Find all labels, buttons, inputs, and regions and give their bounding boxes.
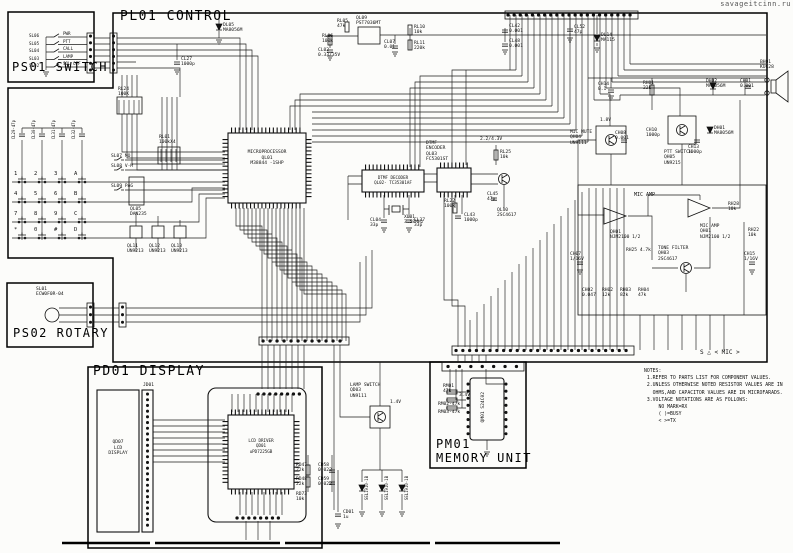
label-rm01: RM01 47k: [443, 384, 454, 395]
label-kc1: CL29-47p: [12, 120, 17, 139]
keypad-key: 9: [54, 211, 57, 217]
label-cl43: CL43 1000p: [464, 213, 478, 224]
label-qh01b: MIC AMP QH01 NJM2100 1/2: [700, 224, 730, 240]
keypad-key: 3: [54, 171, 57, 177]
block-title-pm01: PM01 MEMORY UNIT: [436, 438, 532, 466]
ic-lcd: QD07 LCD DISPLAY: [99, 440, 137, 457]
label-ch14: CH14 0.1: [598, 82, 609, 93]
label-cd58: CD58 0.022: [318, 463, 332, 474]
voltage-v14: 1.4V: [390, 400, 401, 405]
switch-name: SQL OFF: [63, 61, 81, 66]
label-rd48: RD48 22k: [296, 477, 307, 488]
keypad-key: 7: [14, 211, 17, 217]
label-ch10: CH10 1000p: [646, 128, 660, 139]
label-ch08: CH08 0.001: [615, 131, 629, 142]
label-rh02: RH02 12k: [602, 288, 613, 299]
label-bh01: BH01 KUC28: [760, 60, 774, 71]
keypad-key: C: [74, 211, 77, 217]
label-kc4: CL32-47p: [72, 120, 77, 139]
label-cl04: CL04 33p: [370, 218, 381, 229]
ic-dtmf-decoder: DTMF DECODER QL02- TC35301AF: [363, 175, 423, 186]
keypad-key: D: [74, 227, 77, 233]
label-ql12: QL12 UN9213: [149, 244, 166, 255]
label-kc3: CL31-47p: [52, 120, 57, 139]
switch-name: PTT: [63, 39, 71, 44]
label-mic-mute: MIC MUTE QH04 UN9111: [570, 130, 592, 146]
label-mic-amp: MIC AMP: [634, 193, 655, 199]
switch-name: LAMP: [63, 54, 73, 59]
label-led2: SEL1910-1B: [385, 476, 390, 500]
label-dh01: DH01 MA8056M: [714, 126, 733, 137]
label-rl06: RL06 100k: [322, 34, 333, 45]
label-ql11: QL11 UN9213: [127, 244, 144, 255]
label-rm03: RM03-47k: [438, 410, 460, 415]
sheet-mark: S △ < MIC >: [700, 349, 740, 356]
label-cl37: CL37 33p: [414, 218, 425, 229]
label-cl48: CL48 0.001: [509, 39, 523, 50]
keypad-key: 2: [34, 171, 37, 177]
keypad-key: 6: [54, 191, 57, 197]
label-ch15: CH15 1/16V: [744, 252, 758, 263]
label-cl42: CL42 0.001: [509, 24, 523, 35]
block-title-ps01: PS01 SWITCH: [12, 60, 108, 74]
label-rd47: RD47 22k: [296, 463, 307, 474]
switch-ref: SL06: [29, 33, 39, 38]
label-sl08: SL08 V-M: [111, 164, 133, 169]
label-rl11: RL11 220k: [414, 41, 425, 52]
keypad-key: 0: [34, 227, 37, 233]
keypad-key: 4: [14, 191, 17, 197]
label-rh28: RH28 10k: [728, 202, 739, 213]
label-ql10: QL10 2SC4617: [497, 208, 516, 219]
label-ql09: QL09 PST7036MT: [356, 16, 381, 27]
keypad-key: 1: [14, 171, 17, 177]
label-cl52: CL52 47p: [574, 25, 585, 36]
label-dl05: DL05 MA8056M: [223, 23, 242, 34]
block-title-pl01: PL01 CONTROL: [120, 9, 232, 24]
switch-ref: SL02: [29, 63, 39, 68]
ic-dtmf-encoder: DTMF ENCODER QL03 FC5301ST: [426, 141, 448, 162]
label-led3: SEL1910-1B: [405, 476, 410, 500]
label-rm02: RM02-47k: [438, 402, 460, 407]
ic-eeprom: QM01 S24C02: [481, 392, 486, 422]
label-tone-filter: TONE FILTER QH03 2SC4617: [658, 246, 688, 262]
label-rl22: RL22 100k: [444, 199, 455, 210]
label-ch02: CH02 0.047: [582, 288, 596, 299]
label-qh01a: QH01 NJM2100 1/2: [610, 230, 640, 241]
ic-cpu: MICROPROCESSOR QL01 M38844 -1SHP: [230, 150, 304, 167]
label-ch07: CH07 1/16V: [570, 252, 584, 263]
keypad-key: #: [54, 227, 57, 233]
keypad-key: A: [74, 171, 77, 177]
block-title-ps02: PS02 ROTARY: [13, 326, 109, 340]
label-ql13: QL13 UN9213: [171, 244, 188, 255]
ic-lcd-driver: LCD DRIVER QD01 uPD7225GB: [230, 438, 292, 454]
label-dh02: DH02 MA8056M: [706, 79, 725, 90]
label-ql05: QL05 DAN235: [130, 207, 147, 218]
watermark: savageitcinn.ru: [720, 0, 791, 8]
label-rl10: RL10 10k: [414, 25, 425, 36]
keypad-key: B: [74, 191, 77, 197]
label-sl09: SL09 PAG: [111, 184, 133, 189]
switch-ref: SL03: [29, 56, 39, 61]
switch-ref: SL05: [29, 41, 39, 46]
switch-ref: SL04: [29, 48, 39, 53]
ic-bodies: [87, 11, 766, 532]
label-dl14: DL14 MA115: [601, 33, 615, 44]
label-cl45: CL45 47p: [487, 192, 498, 203]
label-rh04: RH04 47k: [638, 288, 649, 299]
label-rh01: RH01 22k: [643, 81, 654, 92]
rotary-encoder-label: SL01 ECW0F0R-04: [36, 287, 64, 298]
label-rh03: RH03 82k: [620, 288, 631, 299]
voltage-v18: 1.8V: [600, 118, 611, 123]
keypad-key: 8: [34, 211, 37, 217]
label-led1: SEL1910-1B: [365, 476, 370, 500]
label-rl25: RL25 10k: [500, 150, 511, 161]
switch-name: CALL: [63, 46, 73, 51]
schematic-canvas: [0, 0, 793, 553]
label-ch01: CH01 0.001: [740, 79, 754, 90]
label-cl02: CL02 0.33/35V: [318, 48, 340, 59]
label-rl01: RL01 100kX4: [159, 135, 176, 146]
label-cd01: CD01 1u: [343, 510, 354, 521]
connector-pins: [91, 15, 635, 528]
label-jd01: JD01: [143, 383, 154, 388]
voltage-v2243: 2.2/4.3V: [480, 137, 502, 142]
label-ch13: CH13 1000p: [688, 145, 702, 156]
keypad-key: 5: [34, 191, 37, 197]
label-kc2: CL30-47p: [32, 120, 37, 139]
block-title-pd01: PD01 DISPLAY: [93, 364, 205, 379]
label-sl07: SL07 MO: [111, 154, 130, 159]
label-rh25: RH25 4.7k: [626, 248, 651, 253]
label-lamp-switch: LAMP SWITCH QD03 UN9111: [350, 383, 380, 399]
keypad-key: *: [14, 227, 17, 233]
schematic-page: savageitcinn.ru PS01 SWITCH PL01 CONTROL…: [0, 0, 793, 553]
label-cl07: CL07 0.01: [384, 40, 395, 51]
label-rl24: RL24 100K: [118, 87, 129, 98]
label-rh22: RH22 10k: [748, 228, 759, 239]
label-cl27: CL27 1000p: [181, 57, 195, 68]
notes: NOTES: 1.REFER TO PARTS LIST FOR COMPONE…: [644, 368, 783, 426]
label-cd59: CD59 0.022: [318, 477, 332, 488]
label-rl05: RL05 47k: [337, 19, 348, 30]
switch-name: PWR: [63, 31, 71, 36]
label-rd73: RD73 10k: [296, 492, 307, 503]
voltage-v34: 3.4V: [459, 393, 470, 398]
